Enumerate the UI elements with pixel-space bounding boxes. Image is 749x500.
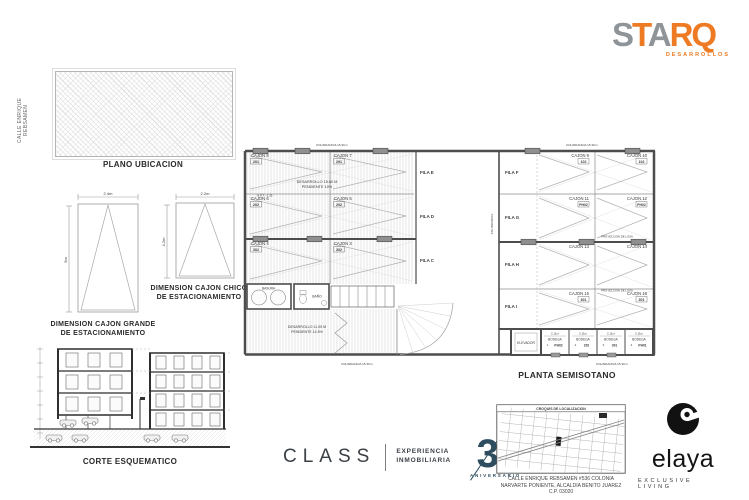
trash-room: BASURA bbox=[247, 284, 291, 309]
stall-unit: PH02 bbox=[579, 203, 588, 207]
stall-unit: 102 bbox=[639, 160, 645, 164]
location-plan-title: PLANO UBICACION bbox=[55, 160, 231, 169]
row-label: FILA I bbox=[505, 304, 517, 309]
upper-ramp-hatch bbox=[247, 151, 415, 284]
address-line3: C.P. 03020 bbox=[478, 489, 644, 496]
building-b bbox=[149, 353, 225, 429]
elaya-tagline: EXCLUSIVE LIVING bbox=[638, 478, 728, 490]
trash-room-label: BASURA bbox=[262, 287, 276, 291]
large-stall-title-line1: DIMENSION CAJON GRANDE bbox=[30, 320, 176, 329]
stall-label: CAJON 7 bbox=[334, 153, 352, 158]
storage-unit-id: 202 bbox=[584, 343, 590, 347]
street-label: CALLE ENRIQUE REBSAMEN bbox=[17, 82, 29, 158]
flag bbox=[140, 397, 145, 400]
lot-line-note: COLINDANCIA bbox=[490, 214, 494, 235]
stall-label: CAJON 8 bbox=[251, 153, 269, 158]
boundary-note-top-left: COLINDANCIA 15.30 m bbox=[316, 143, 349, 147]
large-stall-title: DIMENSION CAJON GRANDE DE ESTACIONAMIENT… bbox=[30, 320, 176, 338]
architectural-sheet: STARQ DESARROLLOS CALLE ENRIQUE REBSAMEN… bbox=[0, 0, 749, 500]
starq-letter: Q bbox=[691, 16, 715, 53]
storage-unit-id: PH01 bbox=[638, 343, 646, 347]
starq-letter: T bbox=[632, 16, 648, 53]
stall-unit: 102 bbox=[581, 160, 587, 164]
starq-letter: A bbox=[648, 16, 670, 53]
class-wordmark: CLASS bbox=[283, 446, 375, 468]
stall-width-dim: 2.2m bbox=[201, 191, 211, 196]
stall-unit: PH02 bbox=[637, 203, 646, 207]
project-address: CALLE ENRIQUE REBSAMEN #536 COLONIA NARV… bbox=[478, 476, 644, 496]
storage-unit-id: PH02 bbox=[554, 343, 562, 347]
location-plan-hatch bbox=[55, 71, 233, 157]
stall-label: CAJON 12 bbox=[627, 196, 648, 201]
section-title: CORTE ESQUEMATICO bbox=[45, 457, 215, 466]
storage-units: 2.11m BODEGA 1 PH02 2.11m BODEGA 2 202 2… bbox=[541, 329, 653, 357]
large-stall-title-line2: DE ESTACIONAMIENTO bbox=[30, 329, 176, 338]
stall-unit: 202 bbox=[253, 203, 259, 207]
lower-ramp-note-line1: DESARROLLO 11.05 M bbox=[288, 325, 326, 329]
stall-label: CAJON 3 bbox=[334, 241, 352, 246]
stall-unit: 201 bbox=[336, 160, 342, 164]
stall-label: CAJON 10 bbox=[627, 153, 648, 158]
stall-unit: 202 bbox=[336, 203, 342, 207]
row-label: FILA D bbox=[420, 214, 434, 219]
stall-label: CAJON 5 bbox=[334, 196, 352, 201]
elaya-wordmark: elaya bbox=[652, 447, 714, 472]
storage-label: BODEGA bbox=[632, 338, 647, 342]
elevator-label: ELEVADOR bbox=[517, 341, 535, 345]
class-tagline: EXPERIENCIA INMOBILIARIA bbox=[396, 448, 451, 466]
class-tagline-line1: EXPERIENCIA bbox=[396, 448, 451, 457]
boundary-note-bottom-right: COLINDANCIA 15.30 m bbox=[596, 362, 629, 366]
row-label: FILA H bbox=[505, 262, 519, 267]
lower-ramp-note-line2: PENDIENTE 14.5% bbox=[291, 330, 324, 334]
storage-dim: 2.11m bbox=[579, 331, 588, 335]
elevator: ELEVADOR bbox=[511, 329, 541, 355]
stall-unit: 302 bbox=[253, 248, 259, 252]
stall-label: CAJON 11 bbox=[569, 196, 589, 201]
storage-label: BODEGA bbox=[548, 338, 563, 342]
elaya-logo: elaya EXCLUSIVE LIVING bbox=[638, 397, 728, 490]
slab-note-1: PROYECCION DE LOSA bbox=[601, 235, 633, 239]
elaya-icon bbox=[661, 397, 705, 441]
stall-label: CAJON 6 bbox=[251, 196, 269, 201]
row-label: FILA E bbox=[420, 170, 434, 175]
starq-logo: STARQ DESARROLLOS bbox=[612, 18, 732, 58]
starq-wordmark: STARQ bbox=[612, 18, 732, 51]
small-stall-diagram: 2.2m 4.2m bbox=[156, 190, 242, 282]
class-tagline-line2: INMOBILIARIA bbox=[396, 457, 451, 466]
row-label: FILA C bbox=[420, 258, 435, 263]
floor-plan-title: PLANTA SEMISOTANO bbox=[477, 370, 657, 380]
upper-ramp-note-line1: DESARROLLO 15.60 M bbox=[297, 180, 338, 184]
stall-depth-dim: 5m bbox=[63, 257, 68, 263]
stall-unit: 301 bbox=[639, 298, 645, 302]
stall-label: CAJON 14 bbox=[627, 244, 648, 249]
stall-label: CAJON 13 bbox=[569, 244, 590, 249]
storage-dim: 2.11m bbox=[607, 331, 616, 335]
logo-divider bbox=[385, 444, 386, 471]
stall-unit: 302 bbox=[336, 248, 342, 252]
storage-unit-id: 301 bbox=[612, 343, 618, 347]
parking-stall: CAJON 9 102 CAJON 10 102 CAJON 11 PH02 C… bbox=[569, 153, 648, 302]
stall-unit: 201 bbox=[253, 160, 259, 164]
row-label: FILA G bbox=[505, 215, 520, 220]
landmark-block bbox=[599, 413, 607, 418]
location-map: CROQUIS DE LOCALIZACION bbox=[496, 404, 626, 474]
starq-letter: S bbox=[612, 16, 632, 53]
map-title: CROQUIS DE LOCALIZACION bbox=[536, 407, 586, 411]
stall-label: CAJON 15 bbox=[569, 291, 590, 296]
storage-label: BODEGA bbox=[576, 338, 591, 342]
stall-unit: 301 bbox=[581, 298, 587, 302]
stall-width-dim: 2.4m bbox=[104, 191, 114, 196]
turning-fan bbox=[397, 303, 453, 355]
storage-label: BODEGA bbox=[604, 338, 619, 342]
lockers-strip bbox=[331, 286, 394, 307]
upper-ramp-note-line2: PENDIENTE 10% bbox=[302, 185, 333, 189]
row-label: FILA F bbox=[505, 170, 519, 175]
storage-dim: 2.11m bbox=[551, 331, 560, 335]
row-labels: FILA E FILA D FILA C FILA F FILA G FILA … bbox=[420, 170, 520, 309]
schematic-section-drawing bbox=[26, 341, 234, 453]
storage-dim: 2.11m bbox=[635, 331, 644, 335]
stall-label: CAJON 16 bbox=[627, 291, 648, 296]
site-marker bbox=[556, 437, 562, 446]
boundary-note-top-right: COLINDANCIA 15.30 m bbox=[566, 143, 599, 147]
bathroom-label: BAÑO bbox=[312, 294, 322, 299]
floor-plan-drawing: DESARROLLO 15.60 M PENDIENTE 10% DESARRO… bbox=[237, 139, 663, 375]
stall-depth-dim: 4.2m bbox=[161, 237, 166, 247]
building-a bbox=[57, 349, 133, 429]
bathroom: BAÑO bbox=[294, 284, 329, 309]
starq-letter: R bbox=[670, 16, 692, 53]
boundary-note-bottom-left: COLINDANCIA 15.30 m bbox=[341, 362, 374, 366]
level-dimension-ticks bbox=[37, 347, 43, 439]
stall-label: CAJON 9 bbox=[571, 153, 589, 158]
stall-label: CAJON 4 bbox=[251, 241, 269, 246]
